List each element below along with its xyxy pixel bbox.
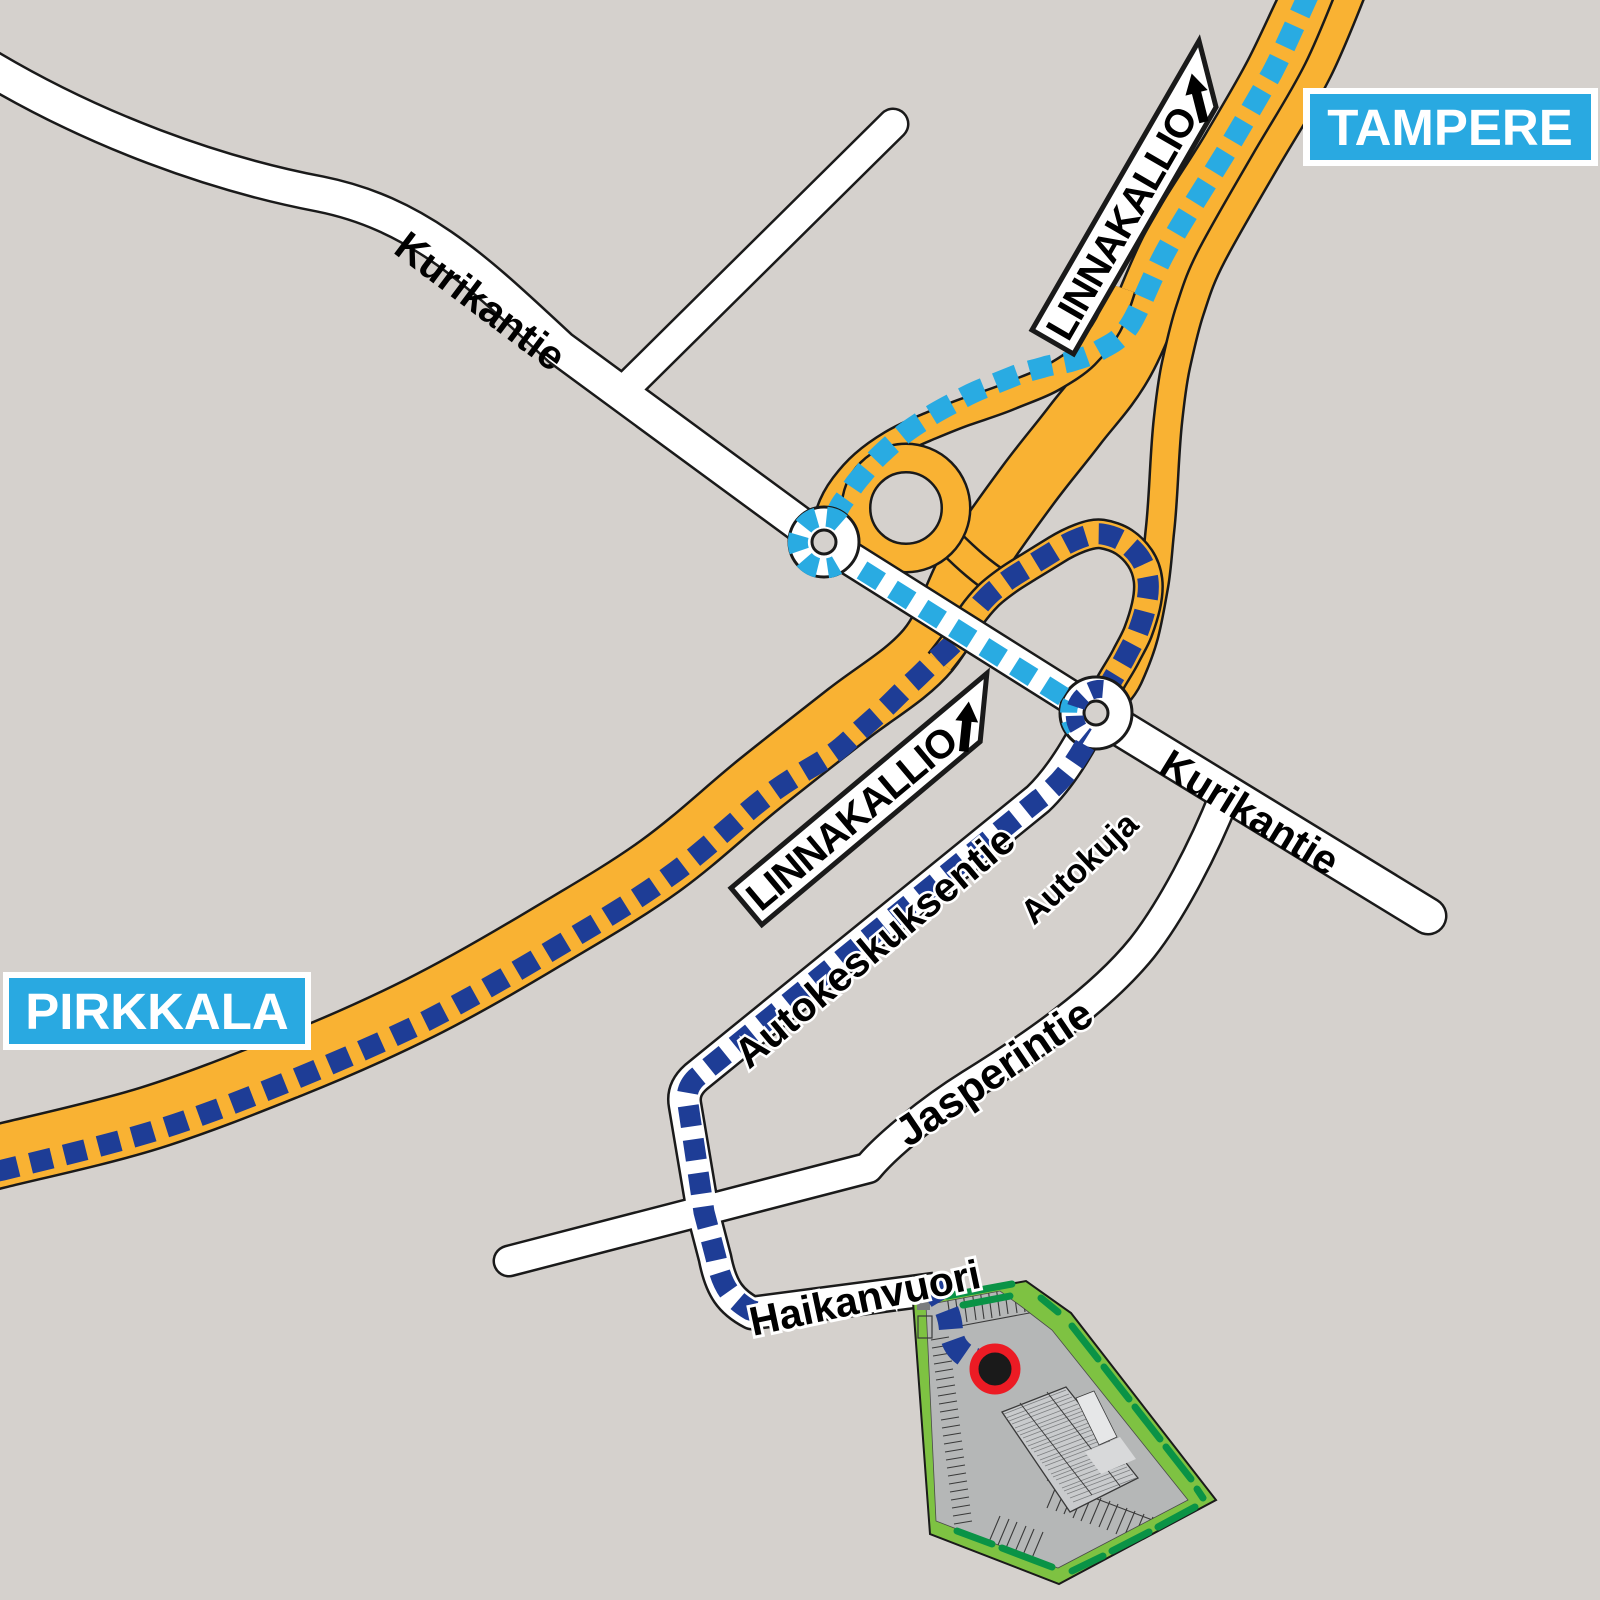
svg-text:PIRKKALA: PIRKKALA xyxy=(25,983,289,1040)
svg-text:TAMPERE: TAMPERE xyxy=(1327,99,1573,156)
